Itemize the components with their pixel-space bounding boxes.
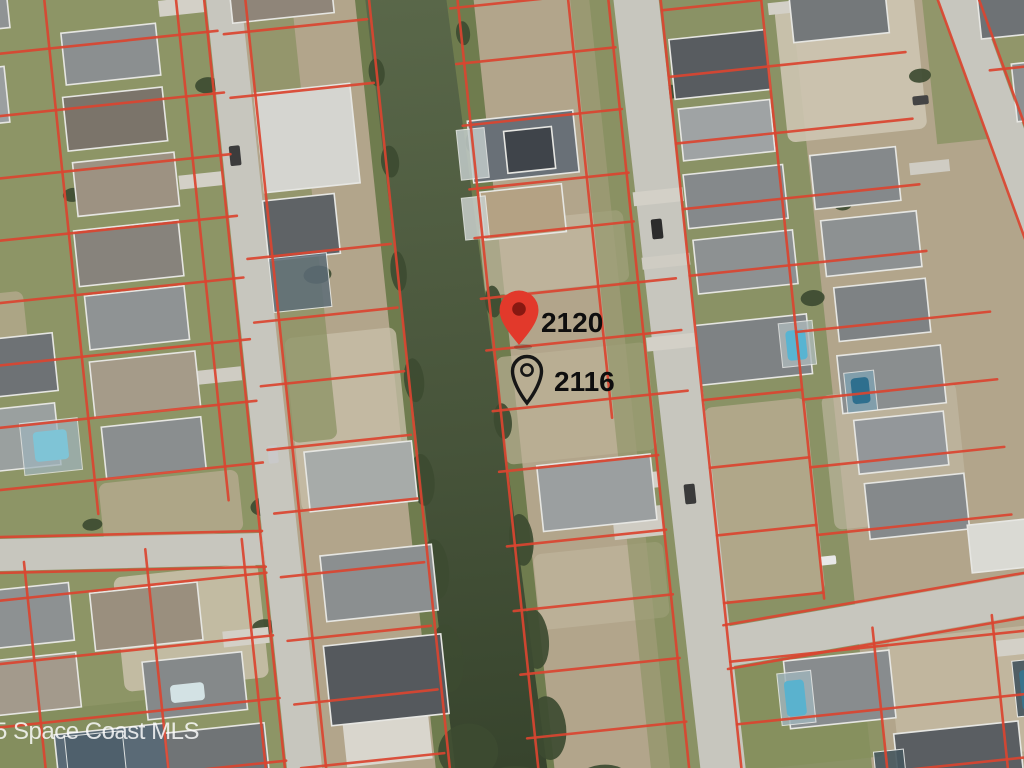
house-roof <box>854 411 949 474</box>
house-roof <box>821 211 922 277</box>
house-roof <box>323 634 449 726</box>
aerial-photo-map: 2120 2116 5 Space Coast MLS <box>0 0 1024 768</box>
watermark-attribution: 5 Space Coast MLS <box>0 718 199 745</box>
house-roof <box>683 165 788 229</box>
marker-label-2120: 2120 <box>541 307 603 338</box>
swimming-pool <box>784 679 808 717</box>
house-roof <box>669 30 771 100</box>
car <box>683 483 696 504</box>
car <box>820 555 837 566</box>
car <box>912 95 929 106</box>
house-roof <box>693 230 798 294</box>
car <box>651 218 664 239</box>
pool-enclosure <box>461 196 489 240</box>
house-roof <box>90 582 203 651</box>
house-roof <box>834 278 931 341</box>
car <box>229 145 242 166</box>
house-roof <box>320 544 438 621</box>
house-roof <box>254 83 360 192</box>
pin-hole-icon <box>512 302 526 316</box>
rotated-aerial-layer <box>0 0 1024 768</box>
house-roof <box>678 100 775 161</box>
marker-label-2116: 2116 <box>554 366 615 397</box>
house-roof <box>61 23 161 85</box>
house-roof <box>63 87 168 151</box>
house-roof <box>480 184 567 240</box>
pin-shadow <box>514 344 532 350</box>
house-roof <box>84 286 189 350</box>
house-roof <box>504 126 556 173</box>
mls-aerial-map-view: 2120 2116 5 Space Coast MLS <box>0 0 1024 768</box>
house-roof <box>810 147 901 210</box>
swimming-pool <box>170 682 206 703</box>
pool-enclosure <box>873 749 908 768</box>
house-roof <box>0 333 58 402</box>
swimming-pool <box>850 377 871 405</box>
swimming-pool <box>32 429 69 462</box>
